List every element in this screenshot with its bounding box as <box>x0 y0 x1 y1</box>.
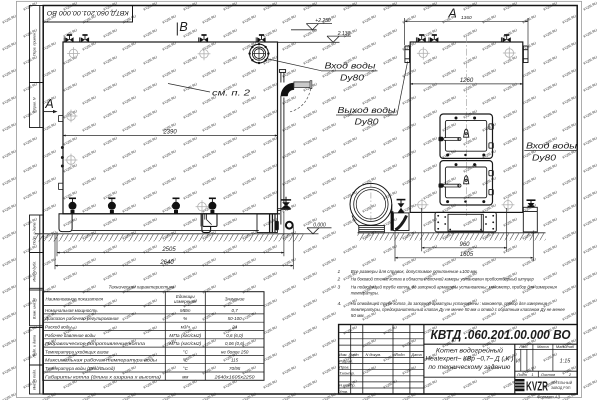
svg-text:960: 960 <box>459 242 470 248</box>
svg-text:Температура воды (Вход/Выход): Температура воды (Вход/Выход) <box>45 366 115 371</box>
svg-text:2640: 2640 <box>159 260 174 266</box>
svg-text:Температура уходящих газов: Температура уходящих газов <box>45 349 109 354</box>
svg-text:2.130: 2.130 <box>337 31 351 37</box>
svg-text:Расход воды: Расход воды <box>45 325 72 330</box>
svg-text:Dy80: Dy80 <box>355 118 380 127</box>
svg-text:°С: °С <box>183 349 189 354</box>
svg-text:A: A <box>44 97 53 111</box>
svg-text:Котел водогрейный: Котел водогрейный <box>436 347 504 354</box>
svg-text:Heatexpert– КВр –0,7– Д ( К ): Heatexpert– КВр –0,7– Д ( К ) <box>425 357 513 363</box>
svg-text:Dy80: Dy80 <box>340 74 365 83</box>
svg-text:Разраб.: Разраб. <box>339 358 353 363</box>
svg-text:0,6 (6,0): 0,6 (6,0) <box>226 333 243 338</box>
svg-text:по техническому заданию: по техническому заданию <box>428 365 511 371</box>
svg-text:2390: 2390 <box>162 129 177 135</box>
svg-text:Наименование показателя: Наименование показателя <box>46 297 104 302</box>
svg-text:Вход воды: Вход воды <box>526 141 577 150</box>
svg-text:Инв. N подл.: Инв. N подл. <box>33 369 37 390</box>
svg-text:Гидравлическое сопротивление к: Гидравлическое сопротивление котла <box>45 341 146 346</box>
svg-text:Изм. Лист: Изм. Лист <box>339 352 359 357</box>
svg-text:не более 250: не более 250 <box>221 349 249 354</box>
svg-text:2640х1605х2250: 2640х1605х2250 <box>213 374 255 379</box>
svg-text:B: B <box>179 20 187 34</box>
svg-text:1260: 1260 <box>460 78 474 84</box>
svg-text:МПа (кгс/см2): МПа (кгс/см2) <box>169 341 202 346</box>
svg-text:Выход воды: Выход воды <box>338 106 396 115</box>
svg-text:Все размеры для справок, допус: Все размеры для справок, допустимое откл… <box>351 269 478 275</box>
svg-text:температуры, предохранительный: температуры, предохранительный клапан Ду… <box>351 306 565 313</box>
svg-text:Масштаб: Масштаб <box>556 344 575 349</box>
svg-text:На боковой стенке котла в обла: На боковой стенке котла в области топочн… <box>351 276 534 283</box>
svg-text:70/95: 70/95 <box>229 366 241 371</box>
svg-text:Т.контр.: Т.контр. <box>339 371 355 376</box>
svg-text:Пров.: Пров. <box>339 364 349 369</box>
svg-text:Дата: Дата <box>410 352 422 357</box>
svg-text:Формат А3: Формат А3 <box>537 394 561 399</box>
svg-text:3: 3 <box>338 284 341 290</box>
svg-text:1:15: 1:15 <box>560 359 572 365</box>
svg-text:Техническая характеристика: Техническая характеристика <box>109 285 175 291</box>
svg-text:Лист: Лист <box>516 372 528 377</box>
svg-text:Н.контр.: Н.контр. <box>339 383 355 388</box>
svg-text:ЗАВОД РЭП: ЗАВОД РЭП <box>551 386 571 390</box>
svg-text:A: A <box>447 7 456 21</box>
svg-text:1: 1 <box>338 269 341 275</box>
svg-text:%: % <box>183 316 187 321</box>
svg-text:4.: 4. <box>338 301 342 307</box>
svg-text:м3/ч: м3/ч <box>181 325 191 330</box>
svg-text:°С: °С <box>183 366 189 371</box>
svg-text:измерения: измерения <box>174 299 197 304</box>
svg-text:N докум.: N докум. <box>366 352 382 357</box>
svg-text:115: 115 <box>231 358 239 363</box>
svg-text:1605: 1605 <box>460 252 474 258</box>
svg-text:Рабочее давление воды: Рабочее давление воды <box>45 333 96 338</box>
svg-text:Номинальная мощность: Номинальная мощность <box>45 308 98 313</box>
svg-text:+2.250: +2.250 <box>315 18 331 24</box>
svg-text:1360: 1360 <box>461 15 472 21</box>
svg-text:Масса: Масса <box>537 344 549 349</box>
svg-text:На подводящей трубе котла, д: На подводящей трубе котла, до запорной а… <box>351 283 557 290</box>
svg-text:температуры.: температуры. <box>351 291 379 296</box>
svg-text:Единицы: Единицы <box>176 294 196 299</box>
svg-text:24: 24 <box>231 325 238 330</box>
svg-text:Справ. N: Справ. N <box>33 97 37 112</box>
svg-text:Dy80: Dy80 <box>532 154 557 163</box>
svg-text:Значение: Значение <box>225 297 245 302</box>
svg-text:Максимальная рабочая температу: Максимальная рабочая температура воды <box>45 358 158 363</box>
svg-text:КВТД .060.201.00.000 ВО: КВТД .060.201.00.000 ВО <box>431 328 571 342</box>
svg-text:На отводящей трубе котла ,до з: На отводящей трубе котла ,до запорной ар… <box>351 300 547 307</box>
svg-text:2: 2 <box>337 277 341 283</box>
svg-text:Взам. инв. N: Взам. инв. N <box>33 298 37 319</box>
svg-text:Подп. и дата: Подп. и дата <box>33 335 37 358</box>
svg-text:МПа (кгс/см2): МПа (кгс/см2) <box>169 333 202 338</box>
svg-text:И: И <box>516 359 520 365</box>
svg-text:Габариты котла (длина х ширина: Габариты котла (длина х ширина х высота) <box>45 374 162 379</box>
svg-text:мм: мм <box>182 374 188 379</box>
svg-text:50 мм.: 50 мм. <box>351 313 365 319</box>
svg-text:Инв. N дубл.: Инв. N дубл. <box>33 261 37 282</box>
svg-text:см. п. 2: см. п. 2 <box>212 89 251 98</box>
svg-text:МВт: МВт <box>180 308 191 313</box>
svg-text:1: 1 <box>531 372 533 377</box>
svg-text:Диапазон рабочего регулировани: Диапазон рабочего регулирования <box>44 316 119 321</box>
svg-text:0.000: 0.000 <box>313 223 326 229</box>
svg-text:КОТЕЛЬНЫЙ: КОТЕЛЬНЫЙ <box>551 381 573 385</box>
svg-text:Утв.: Утв. <box>339 389 348 394</box>
svg-text:Перв. примен.: Перв. примен. <box>33 32 37 56</box>
svg-text:°С: °С <box>183 358 189 363</box>
svg-text:50-100: 50-100 <box>228 316 243 321</box>
svg-text:Листов: Листов <box>540 372 555 377</box>
svg-text:Вход воды: Вход воды <box>325 62 376 71</box>
svg-text:Подп.: Подп. <box>395 352 405 357</box>
svg-text:0,7: 0,7 <box>231 308 238 313</box>
svg-text:КВТД.060.201.00.000 ВО: КВТД.060.201.00.000 ВО <box>46 9 129 16</box>
svg-text:KVZR: KVZR <box>526 380 548 394</box>
svg-text:0,06 (0,6): 0,06 (0,6) <box>225 341 245 346</box>
svg-text:2505: 2505 <box>161 247 176 253</box>
svg-text:Лит.: Лит. <box>518 344 528 349</box>
